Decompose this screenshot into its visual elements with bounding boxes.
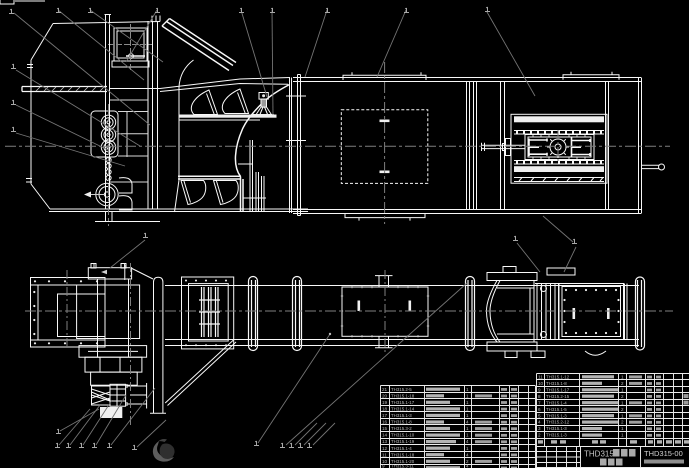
svg-text:TH315.1-4: TH315.1-4: [391, 446, 412, 451]
svg-text:10: 10: [538, 381, 544, 386]
svg-text:15: 15: [382, 426, 388, 431]
svg-text:17: 17: [382, 413, 388, 418]
svg-text:1: 1: [466, 426, 469, 431]
svg-text:8: 8: [538, 394, 541, 399]
svg-text:11: 11: [382, 452, 387, 457]
svg-text:4: 4: [466, 420, 469, 425]
svg-text:TH315.1-5: TH315.1-5: [546, 407, 567, 412]
svg-text:TH315.3-2: TH315.3-2: [391, 426, 412, 431]
svg-text:4: 4: [538, 420, 541, 425]
svg-text:1: 1: [621, 400, 624, 405]
svg-text:2: 2: [538, 433, 541, 438]
svg-text:TH315.1-17: TH315.1-17: [546, 387, 570, 392]
svg-text:TH315.1-3: TH315.1-3: [546, 433, 567, 438]
svg-text:TH315.1-8: TH315.1-8: [546, 381, 567, 386]
svg-text:16: 16: [382, 420, 388, 425]
svg-text:1: 1: [621, 374, 624, 379]
svg-text:4: 4: [466, 452, 469, 457]
svg-text:1: 1: [466, 446, 469, 451]
svg-text:1: 1: [621, 433, 624, 438]
svg-text:TH315.1-8: TH315.1-8: [391, 420, 412, 425]
svg-text:1: 1: [466, 393, 469, 398]
svg-text:TH315.1-19: TH315.1-19: [391, 439, 415, 444]
svg-text:6: 6: [538, 407, 541, 412]
svg-text:TH315.1-14: TH315.1-14: [391, 407, 415, 412]
svg-text:4: 4: [466, 439, 469, 444]
svg-text:TH315.1-18: TH315.1-18: [391, 452, 415, 457]
svg-text:9: 9: [382, 464, 385, 468]
svg-text:1: 1: [621, 387, 624, 392]
svg-text:5: 5: [538, 413, 541, 418]
svg-text:2: 2: [621, 407, 624, 412]
svg-text:2: 2: [621, 420, 624, 425]
svg-text:TH315.1-12: TH315.1-12: [546, 374, 570, 379]
svg-text:12: 12: [382, 446, 388, 451]
svg-text:1: 1: [466, 400, 469, 405]
svg-text:9: 9: [538, 387, 541, 392]
svg-text:1: 1: [621, 413, 624, 418]
svg-text:TH315.1-3: TH315.1-3: [546, 413, 567, 418]
svg-text:THD315-00: THD315-00: [644, 449, 683, 458]
svg-text:1: 1: [466, 407, 469, 412]
svg-text:TH315.1-17: TH315.1-17: [391, 400, 415, 405]
svg-text:THD315: THD315: [584, 450, 614, 459]
svg-text:13: 13: [382, 439, 388, 444]
svg-text:1: 1: [466, 387, 469, 392]
svg-text:TH315.1-10: TH315.1-10: [391, 433, 415, 438]
svg-text:TH315.1-3: TH315.1-3: [546, 426, 567, 431]
svg-text:TH315.2-12: TH315.2-12: [546, 420, 570, 425]
svg-text:18: 18: [382, 407, 388, 412]
svg-text:11: 11: [538, 374, 543, 379]
svg-text:2: 2: [621, 381, 624, 386]
svg-text:1: 1: [621, 426, 624, 431]
svg-text:19: 19: [382, 400, 388, 405]
svg-text:1: 1: [466, 433, 469, 438]
svg-text:TH315.2-15: TH315.2-15: [546, 394, 570, 399]
svg-text:2: 2: [621, 394, 624, 399]
svg-text:TH315.1-3: TH315.1-3: [391, 413, 412, 418]
svg-text:TH315.2-5: TH315.2-5: [391, 387, 412, 392]
svg-text:1: 1: [466, 413, 469, 418]
svg-text:TH315.3-11: TH315.3-11: [391, 464, 414, 468]
svg-text:TH315.1-4: TH315.1-4: [546, 400, 567, 405]
svg-text:7: 7: [538, 400, 541, 405]
svg-text:14: 14: [382, 433, 388, 438]
svg-text:TH315.1-18: TH315.1-18: [391, 393, 415, 398]
svg-text:21: 21: [382, 387, 388, 392]
svg-text:20: 20: [382, 393, 388, 398]
svg-text:3: 3: [538, 426, 541, 431]
svg-text:4: 4: [466, 464, 469, 468]
